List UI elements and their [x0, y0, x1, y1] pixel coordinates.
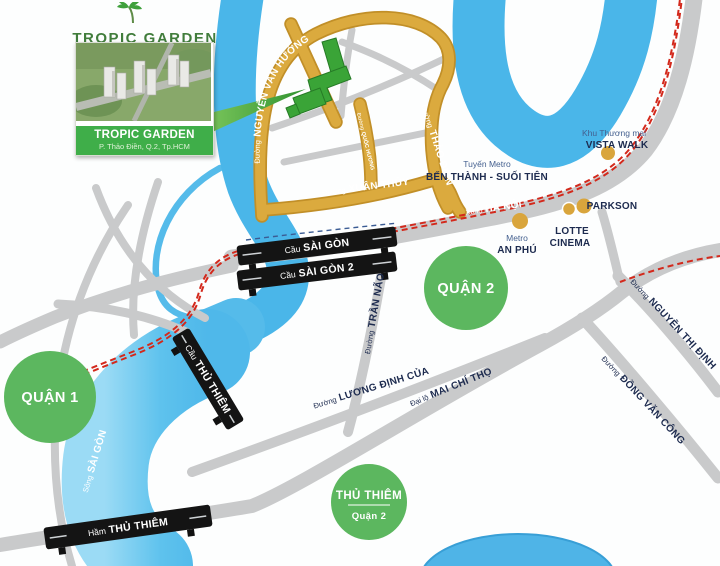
river-bottom-bend	[420, 534, 616, 566]
svg-text:LOTTE: LOTTE	[555, 226, 589, 237]
district-badge-quan2: QUẬN 2	[424, 246, 508, 330]
road-label-tran-nao: ĐườngTRẦN NÃO	[360, 272, 387, 355]
poi-dot-lotte	[563, 203, 576, 216]
river-thao-dien-bend	[478, 0, 633, 142]
poi-label-metro-an-phu: Metro AN PHÚ	[497, 233, 537, 256]
svg-text:CINEMA: CINEMA	[550, 238, 591, 249]
bridge-label-prefix: Cầu	[280, 269, 297, 281]
poi-dot-metro-an-phu	[512, 213, 528, 229]
project-name: TROPIC GARDEN	[77, 129, 212, 141]
svg-text:Metro: Metro	[506, 233, 528, 243]
district-label: QUẬN 2	[437, 279, 494, 297]
district-label: QUẬN 1	[21, 388, 78, 406]
location-map: CầuSÀI GÒN CầuSÀI GÒN 2 CầuTHỦ THIÊM Hầm…	[0, 0, 720, 566]
project-address: P. Thảo Điền, Q.2, Tp.HCM	[77, 142, 212, 151]
svg-text:VISTA WALK: VISTA WALK	[586, 140, 649, 151]
road-label-dong-van-cong: ĐườngĐỒNG VĂN CÔNG	[599, 352, 688, 447]
thao-dien-street-3	[284, 132, 430, 162]
project-aerial-image	[76, 43, 211, 121]
svg-text:AN PHÚ: AN PHÚ	[497, 243, 537, 256]
project-card-caption: TROPIC GARDEN P. Thảo Điền, Q.2, Tp.HCM	[76, 126, 213, 155]
highway-junction-connector	[602, 212, 620, 282]
project-card: TROPIC GARDEN P. Thảo Điền, Q.2, Tp.HCM	[75, 42, 214, 156]
poi-label-parkson: PARKSON	[587, 201, 638, 212]
bridge-label-prefix: Cầu	[284, 244, 301, 256]
metro-label-line2: BẾN THÀNH - SUỐI TIÊN	[426, 169, 548, 183]
metro-label-line1: Tuyến Metro	[463, 159, 511, 169]
poi-label-lotte-cinema: LOTTE CINEMA	[550, 226, 591, 249]
district-badge-thu-thiem: THỦ THIÊM Quận 2	[331, 464, 407, 540]
district-sublabel: Quận 2	[352, 511, 387, 522]
poi-label-vista-walk: Khu Thương mại VISTA WALK	[582, 128, 649, 151]
palm-tree-icon	[117, 2, 147, 24]
district-label: THỦ THIÊM	[336, 489, 402, 502]
district-badge-quan1: QUẬN 1	[4, 351, 96, 443]
svg-text:Khu Thương mại: Khu Thương mại	[582, 128, 646, 138]
road-label-nguyen-thi-dinh: ĐườngNGUYỄN THỊ ĐỊNH	[628, 275, 719, 372]
